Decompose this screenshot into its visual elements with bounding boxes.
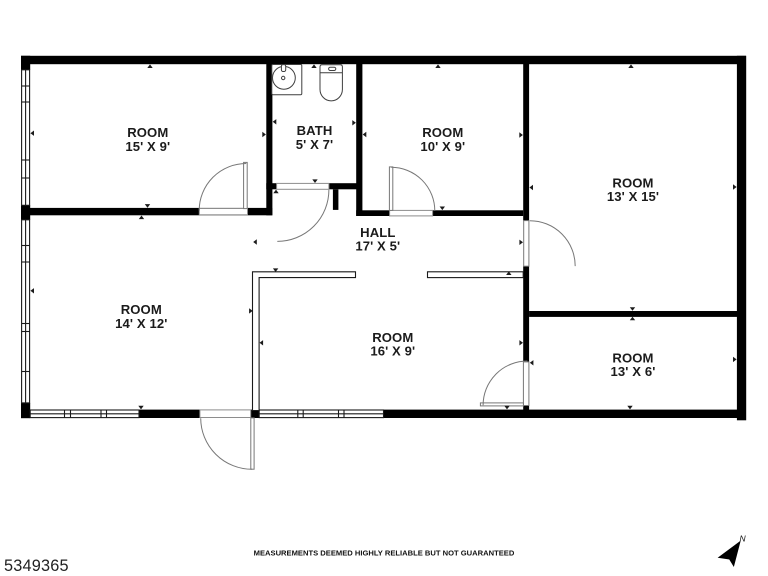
svg-text:5' X 7': 5' X 7' [296, 137, 334, 152]
svg-text:MEASUREMENTS DEEMED HIGHLY REL: MEASUREMENTS DEEMED HIGHLY RELIABLE BUT … [254, 549, 515, 558]
svg-text:13' X 6': 13' X 6' [611, 364, 656, 379]
svg-text:N: N [740, 534, 747, 544]
svg-text:17' X 5': 17' X 5' [355, 238, 400, 253]
svg-text:16' X 9': 16' X 9' [370, 344, 415, 359]
svg-text:13' X 15': 13' X 15' [607, 189, 659, 204]
svg-text:14' X 12': 14' X 12' [115, 316, 167, 331]
svg-text:10' X 9': 10' X 9' [420, 139, 465, 154]
svg-text:15' X 9': 15' X 9' [125, 139, 170, 154]
svg-text:5349365: 5349365 [4, 557, 69, 575]
